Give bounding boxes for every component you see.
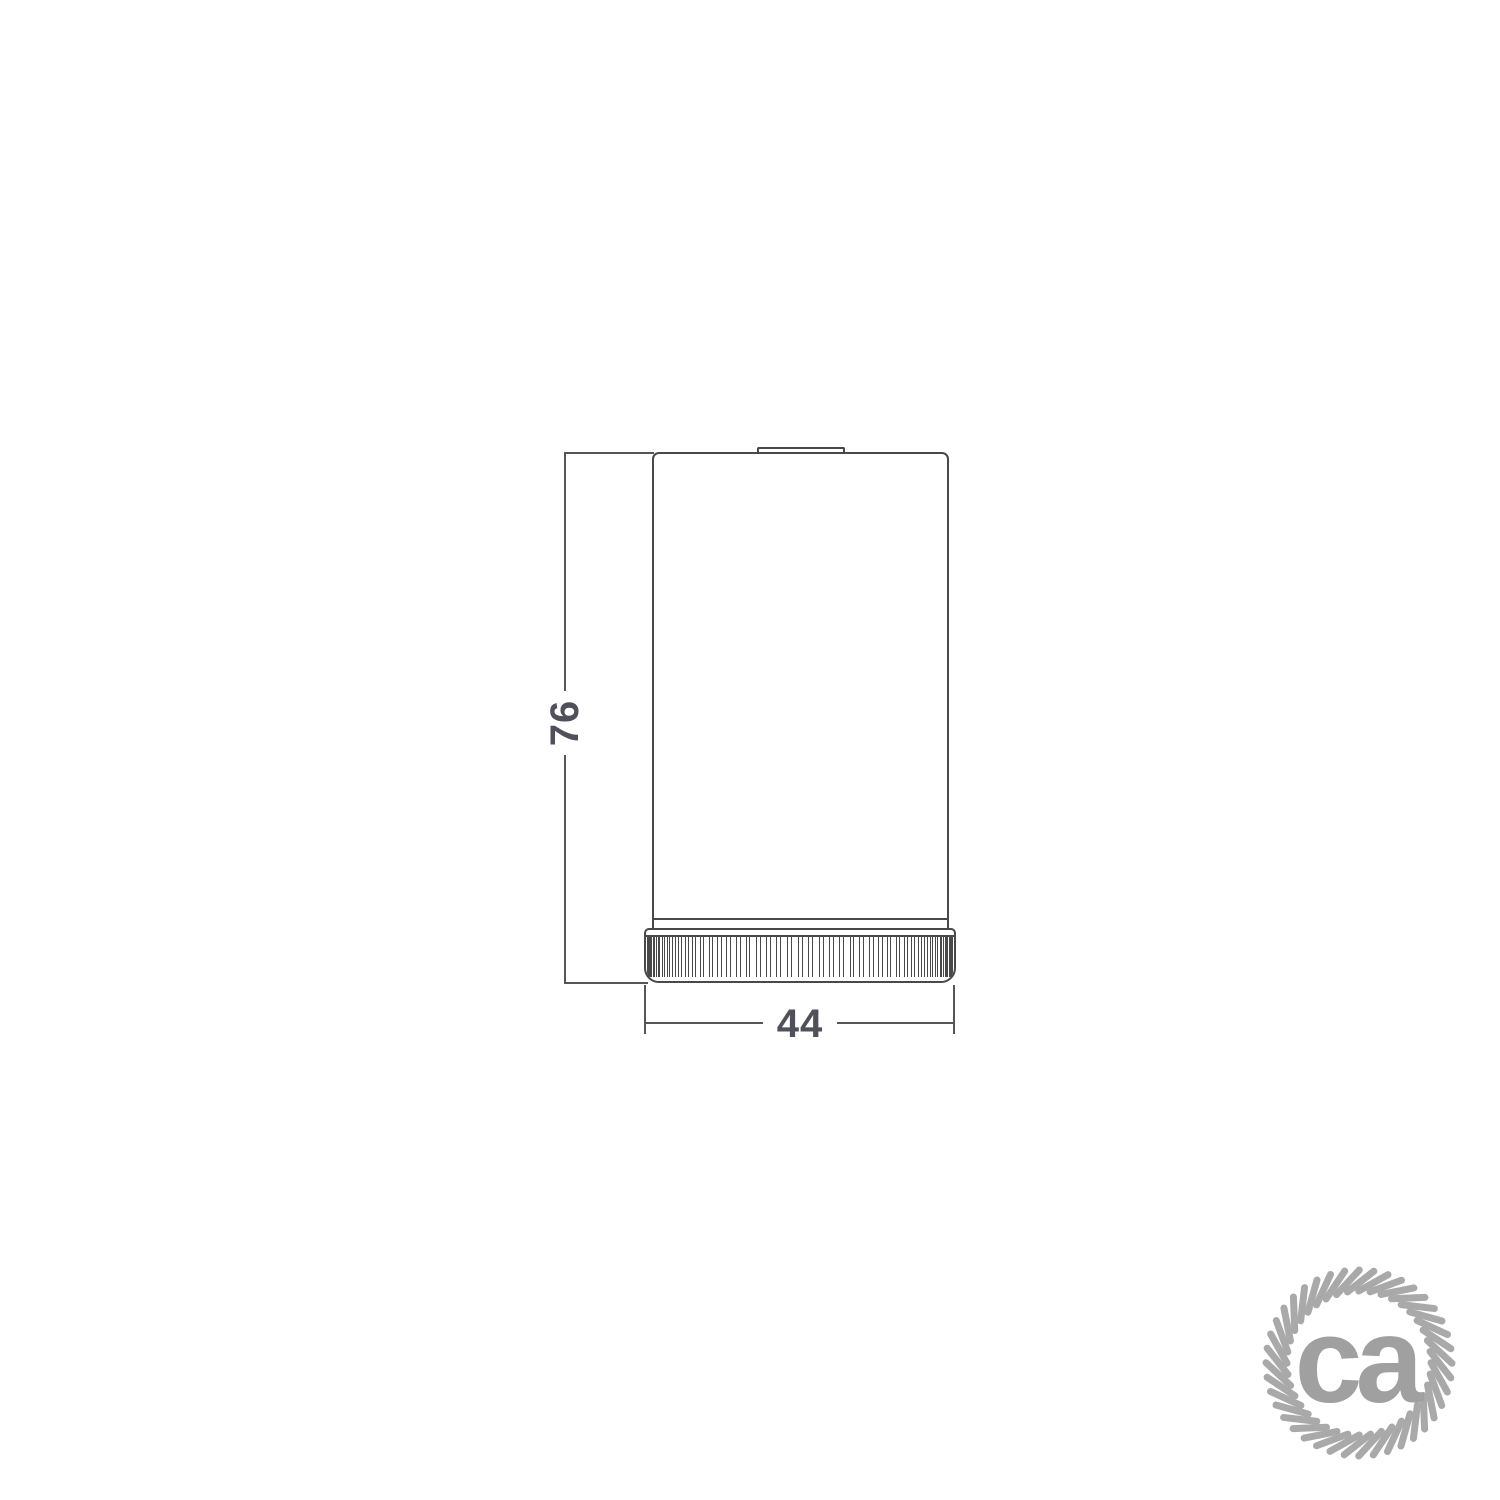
knurl-groove [726,937,731,977]
knurl-groove [878,937,882,977]
knurl-groove [685,937,689,977]
logo-text: ca [1259,1263,1459,1463]
height-extension-line-bottom [564,982,648,984]
knurl-groove [746,937,751,977]
knurl-groove [887,937,891,977]
knurl-groove [839,937,844,977]
knurl-groove [829,937,834,977]
height-extension-line-top [564,452,654,454]
knurl-grooves [646,930,954,981]
knurl-groove [662,937,665,977]
knurl-groove [924,937,927,977]
technical-drawing-canvas: 76 44 ca [0,0,1500,1500]
knurl-groove [756,937,761,977]
knurl-groove [672,937,675,977]
knurl-groove [943,937,945,977]
knurl-groove [651,937,653,977]
knurl-groove [700,937,704,977]
knurl-groove [808,937,813,977]
width-extension-line-left [644,985,646,1034]
body-neck [652,920,949,928]
knurl-groove [911,937,915,977]
knurl-groove [869,937,874,977]
knurl-groove [658,937,661,977]
knurl-groove [798,937,803,977]
knurl-groove [654,937,656,977]
knurl-groove [709,937,713,977]
height-dimension-label: 76 [534,691,596,755]
knurl-groove [766,937,771,977]
knurl-groove [850,937,855,977]
knurl-groove [896,937,900,977]
knurl-groove [678,937,682,977]
knurl-groove [930,937,933,977]
knurl-groove [787,937,792,977]
cylinder-body-outline [652,452,949,920]
knurl-groove [935,937,938,977]
knurl-groove [951,937,953,977]
knurl-groove [859,937,864,977]
knurl-groove [918,937,922,977]
knurl-groove [904,937,908,977]
knurl-groove [692,937,696,977]
width-extension-line-right [953,985,955,1034]
width-dimension-label: 44 [763,1001,837,1047]
knurl-groove [717,937,721,977]
knurl-groove [940,937,943,977]
knurl-groove [819,937,824,977]
brand-logo: ca [1259,1263,1459,1463]
knurled-ring [644,928,956,983]
knurl-groove [736,937,741,977]
knurl-groove [776,937,781,977]
knurl-groove [667,937,670,977]
